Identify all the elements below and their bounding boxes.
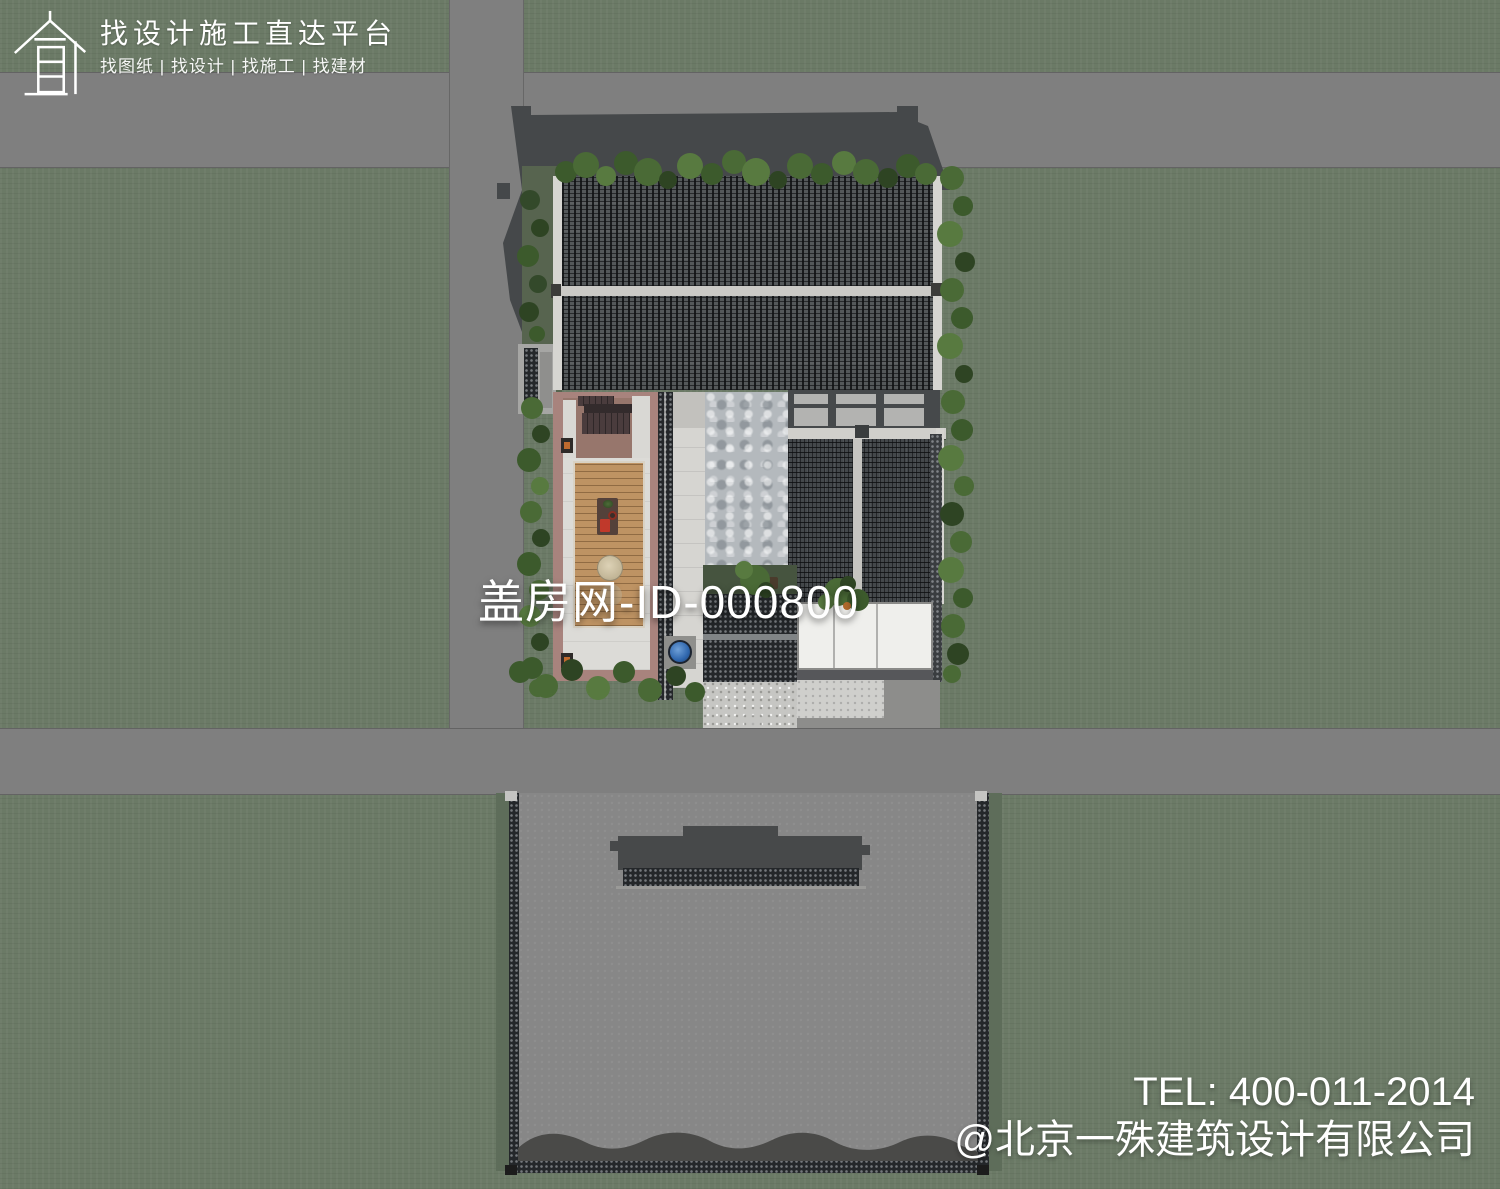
south-gate-tile-wall: [623, 868, 859, 886]
lower-plot-wall-bottom: [509, 1159, 989, 1173]
entry-paving-east: [797, 680, 884, 718]
platform-logo: 找设计施工直达平台 找图纸 | 找设计 | 找施工 | 找建材: [10, 8, 440, 92]
bonsai-plant: [603, 500, 613, 508]
cobblestone-patio: [705, 392, 788, 565]
stairs-lower-flight: [582, 413, 630, 434]
north-roof-lower: [562, 296, 933, 390]
stone-lantern-glow: [564, 657, 570, 664]
north-roof-upper: [562, 176, 933, 286]
tree-column-east: [937, 166, 975, 683]
water-basin: [668, 640, 692, 664]
stone-lantern-glow: [564, 442, 570, 449]
south-gate-shadow-ear-left: [610, 841, 619, 851]
red-tray: [600, 519, 610, 532]
wall-cap-top-right: [975, 791, 987, 801]
gable-cap-west-1: [553, 176, 562, 286]
lower-plot-shade-left: [496, 793, 509, 1171]
skylight-panel: [836, 408, 876, 426]
contact-tel: TEL: 400-011-2014: [954, 1068, 1475, 1116]
south-gate-shadow-ear-right: [861, 845, 870, 855]
west-side-shed-inner: [540, 352, 552, 408]
stairs-landing: [584, 404, 632, 413]
skylight-panel: [836, 394, 876, 404]
skylight-panel: [884, 408, 924, 426]
ridge-end-right: [931, 283, 947, 297]
site-plan-rendering: 找设计施工直达平台 找图纸 | 找设计 | 找施工 | 找建材 盖房网-ID-0…: [0, 0, 1500, 1189]
wall-cap-bottom-left: [505, 1165, 517, 1175]
room-divider: [876, 604, 878, 668]
house-outline-icon: [10, 8, 94, 98]
contact-block: TEL: 400-011-2014 @北京一殊建筑设计有限公司: [954, 1068, 1475, 1164]
wall-cap-bottom-right: [977, 1165, 989, 1175]
gable-cap-west-2: [553, 296, 562, 390]
platform-tagline: 找图纸 | 找设计 | 找施工 | 找建材: [100, 52, 367, 77]
entry-gate-ridge: [703, 634, 797, 640]
west-side-shed-wall: [524, 348, 538, 410]
east-roof-ridge-notch: [855, 425, 869, 438]
wall-cap-top-left: [505, 791, 517, 801]
lower-plot-wall-left: [509, 793, 519, 1171]
gable-cap-east-1: [933, 176, 942, 286]
contact-company: @北京一殊建筑设计有限公司: [954, 1116, 1475, 1164]
south-gate-shadow-body: [618, 836, 862, 870]
watermark-text: 盖房网-ID-000800: [478, 566, 859, 632]
skylight-panel: [794, 408, 828, 426]
entry-paving-main: [703, 682, 797, 728]
stairs-east-aisle: [632, 396, 650, 458]
south-gate-baseline: [616, 886, 866, 889]
skylight-panel: [884, 394, 924, 404]
roof-ridge-band: [553, 286, 945, 296]
platform-title: 找设计施工直达平台: [100, 12, 397, 52]
gable-cap-east-2: [933, 296, 942, 390]
walkway-upper-shade: [673, 392, 705, 428]
road-middle: [0, 728, 1500, 795]
skylight-panel: [794, 394, 828, 404]
